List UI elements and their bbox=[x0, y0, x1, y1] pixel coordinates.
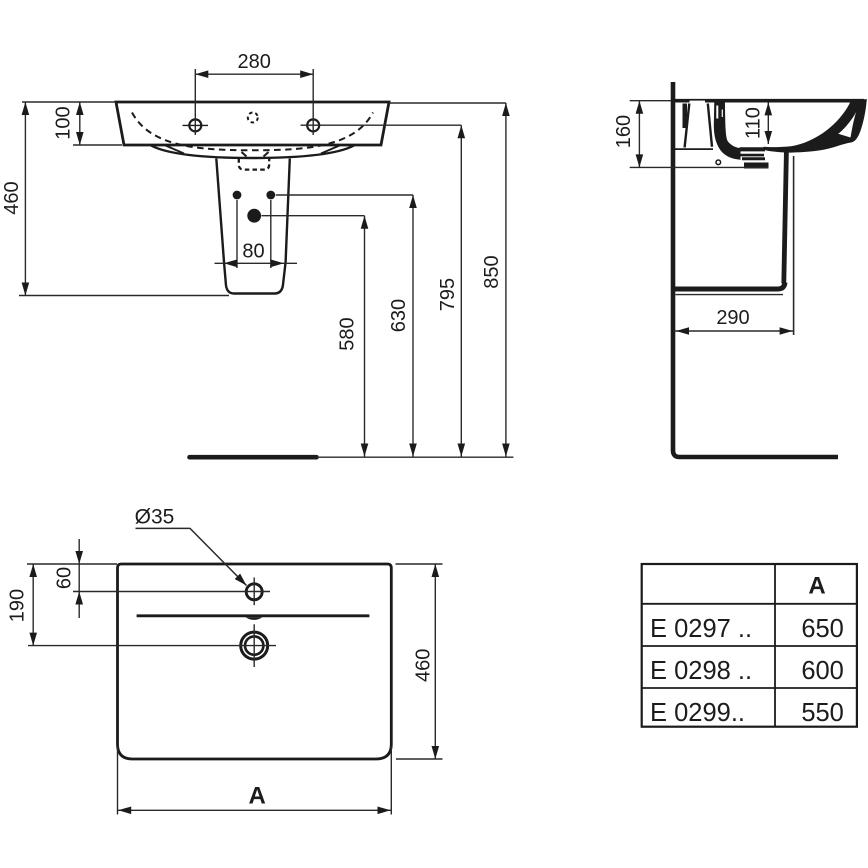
svg-text:630: 630 bbox=[388, 299, 410, 332]
svg-text:460: 460 bbox=[413, 649, 435, 682]
svg-text:650: 650 bbox=[801, 615, 844, 643]
svg-text:100: 100 bbox=[53, 106, 75, 139]
svg-text:290: 290 bbox=[716, 307, 749, 329]
svg-text:E 0299..: E 0299.. bbox=[650, 699, 745, 727]
svg-text:580: 580 bbox=[337, 317, 359, 350]
svg-text:110: 110 bbox=[743, 107, 765, 139]
svg-text:A: A bbox=[808, 572, 825, 599]
svg-text:850: 850 bbox=[481, 255, 503, 288]
svg-text:795: 795 bbox=[437, 278, 459, 311]
svg-text:Ø35: Ø35 bbox=[135, 506, 175, 529]
svg-text:460: 460 bbox=[1, 181, 23, 214]
svg-text:550: 550 bbox=[801, 699, 844, 727]
svg-text:190: 190 bbox=[7, 589, 29, 622]
svg-text:A: A bbox=[249, 783, 266, 810]
svg-text:E 0297 ..: E 0297 .. bbox=[650, 615, 752, 643]
svg-text:E 0298 ..: E 0298 .. bbox=[650, 657, 752, 685]
svg-text:80: 80 bbox=[242, 241, 264, 263]
svg-text:60: 60 bbox=[54, 567, 76, 589]
svg-text:160: 160 bbox=[613, 115, 635, 148]
svg-text:600: 600 bbox=[801, 657, 844, 685]
svg-text:280: 280 bbox=[238, 51, 271, 73]
